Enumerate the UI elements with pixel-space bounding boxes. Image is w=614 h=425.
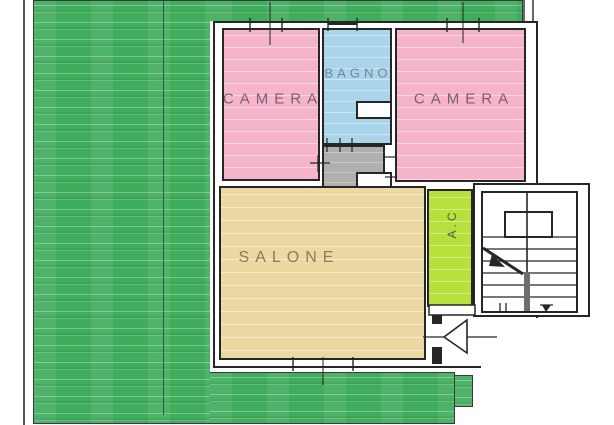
window-symbol-camera-right: [447, 2, 479, 43]
window-symbol-bagno: [328, 18, 357, 31]
window-symbol-camera-left: [250, 2, 282, 45]
door-ticks-camera-right: [385, 157, 397, 177]
stair-steps: [483, 193, 576, 312]
door-ticks-camera-left: [310, 155, 330, 172]
door-ticks-bagno: [327, 138, 352, 152]
plan-linework: [0, 0, 614, 425]
window-symbol-salone: [293, 357, 353, 385]
stair-section-marker: [540, 305, 553, 312]
ac-bottom-wall: [429, 305, 475, 315]
neighbour-wall-lines: [524, 0, 533, 21]
floor-plan: CAMERA BAGNO CAMERA SALONE A.C: [0, 0, 614, 425]
entry-door-swing: [423, 315, 497, 364]
